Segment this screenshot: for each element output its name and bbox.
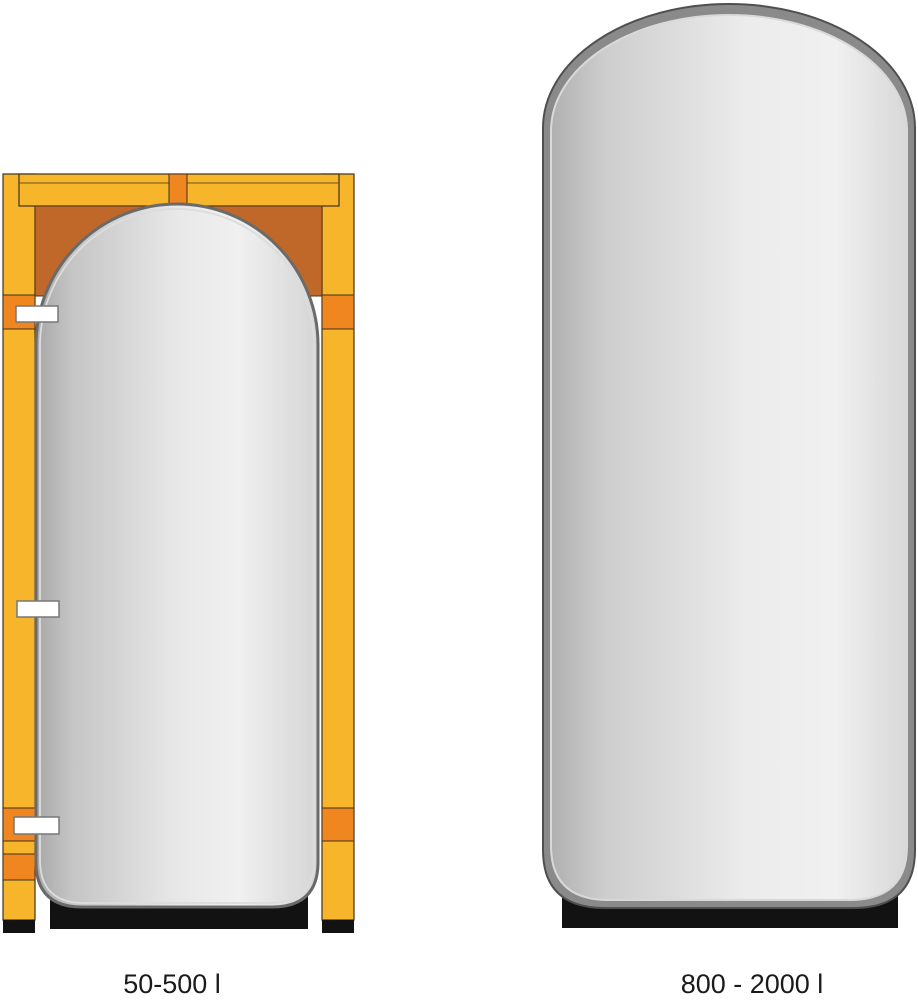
packaged-tank-small [3,174,354,933]
label-large-tank: 800 - 2000 l [681,969,824,999]
frame-right-foot [322,920,354,933]
label-small-tank: 50-500 l [123,969,221,999]
frame-spacer-block-upper-right [322,295,354,329]
frame-spacer-block-lower-right [322,808,354,841]
pipe-stub-middle [17,601,59,617]
tank-body-small [36,204,318,907]
diagram-page: 50-500 l 800 - 2000 l [0,0,918,1000]
frame-left-foot [3,920,35,933]
frame-spacer-block-lower-left-b [3,854,35,880]
pipe-stub-top [16,306,58,322]
tank-body-large [551,15,907,900]
tank-size-comparison-diagram: 50-500 l 800 - 2000 l [0,0,918,1000]
tank-large [543,4,915,928]
pipe-stub-bottom [14,817,59,834]
